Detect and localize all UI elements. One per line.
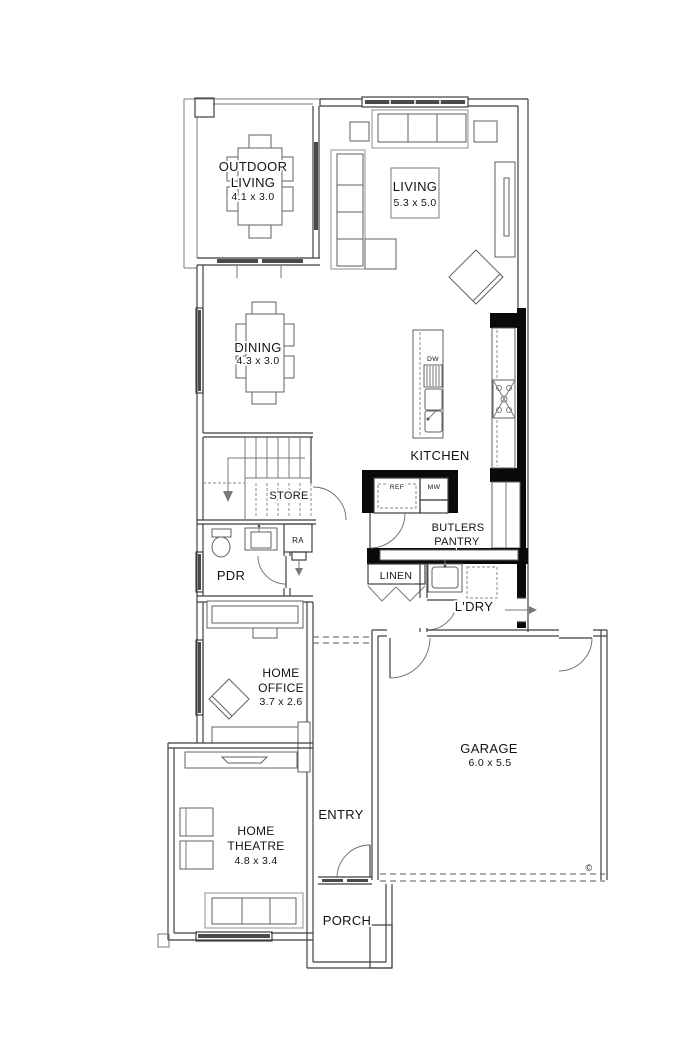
- laundry-label: L'DRY: [455, 599, 493, 614]
- theatre-tv: [222, 757, 267, 763]
- wall-tv: [504, 178, 509, 236]
- kitchen-island: [413, 330, 443, 438]
- garage-label: GARAGE: [460, 741, 517, 756]
- home-theatre-label-2: THEATRE: [227, 839, 284, 853]
- laundry-door-swing: [427, 600, 457, 630]
- linen-label: LINEN: [380, 570, 412, 582]
- home-office-dims: 3.7 x 2.6: [260, 696, 303, 708]
- microwave-label: MW: [428, 484, 441, 491]
- butlers-door-swing: [370, 513, 405, 548]
- outdoor-living-label-2: LIVING: [231, 175, 275, 190]
- toilet-bowl: [212, 537, 230, 557]
- garage-internal-door-swing: [390, 638, 430, 678]
- butlers-pantry-label-2: PANTRY: [434, 536, 480, 548]
- kitchen-label: KITCHEN: [410, 448, 469, 463]
- dining-dims: 4.3 x 3.0: [237, 355, 280, 367]
- floor-plan-drawing: OUTDOOR LIVING 4.1 x 3.0 LIVING 5.3 x 5.…: [0, 0, 700, 1045]
- home-office-label: HOME: [262, 666, 299, 680]
- home-theatre-label: HOME: [237, 824, 274, 838]
- dishwasher-label: DW: [427, 356, 439, 363]
- outdoor-living-dims: 4.1 x 3.0: [232, 191, 275, 203]
- armchair: [449, 250, 503, 304]
- ottoman: [365, 239, 396, 269]
- theatre-window-glazing: [198, 934, 270, 938]
- office-window-glazing: [198, 642, 201, 713]
- laundry: [420, 560, 537, 632]
- butlers-bench: [380, 550, 518, 560]
- entry-walls: [307, 602, 372, 884]
- pdr-fixtures: [212, 524, 277, 557]
- dining-label: DINING: [234, 340, 281, 355]
- entry-label: ENTRY: [318, 807, 363, 822]
- pdr-door-swing: [258, 556, 286, 584]
- theatre-chair-2: [180, 841, 213, 869]
- basin: [251, 532, 271, 548]
- home-office-label-2: OFFICE: [258, 681, 304, 695]
- stairs: [197, 433, 346, 524]
- porch-label: PORCH: [323, 913, 371, 928]
- ra-label: RA: [292, 536, 304, 545]
- washing-machine-space: [467, 567, 497, 598]
- office-desk-return: [298, 722, 310, 772]
- theatre-chair-1: [180, 808, 213, 836]
- garage-rear-door-swing: [559, 638, 592, 671]
- toilet-cistern: [212, 529, 231, 537]
- living-dims: 5.3 x 5.0: [394, 197, 437, 209]
- garage-door-line: [380, 874, 605, 881]
- copyright-symbol: ©: [586, 863, 593, 873]
- home-theatre-dims: 4.8 x 3.4: [235, 855, 278, 867]
- pdr-window-glazing: [198, 554, 201, 590]
- front-door-swing: [337, 845, 370, 878]
- butlers-pantry-label: BUTLERS: [432, 522, 485, 534]
- office-desk: [212, 727, 302, 743]
- fridge-label: REF: [390, 484, 405, 491]
- garage-dims: 6.0 x 5.5: [469, 757, 512, 769]
- linen-bifold-doors: [368, 586, 425, 601]
- store-label: STORE: [269, 490, 308, 502]
- dining-window-glazing: [198, 310, 201, 391]
- living-label: LIVING: [393, 179, 437, 194]
- side-table-right: [474, 121, 497, 142]
- entry-bulkhead-line: [313, 637, 372, 643]
- floor-plan-page: OUTDOOR LIVING 4.1 x 3.0 LIVING 5.3 x 5.…: [0, 0, 700, 1045]
- store-door-swing: [313, 487, 346, 520]
- pdr-label: PDR: [217, 568, 245, 583]
- outdoor-living-label: OUTDOOR: [219, 159, 288, 174]
- side-table-left: [350, 122, 369, 141]
- stacker-door-glazing: [314, 142, 318, 230]
- sink-bowl-1: [425, 389, 442, 410]
